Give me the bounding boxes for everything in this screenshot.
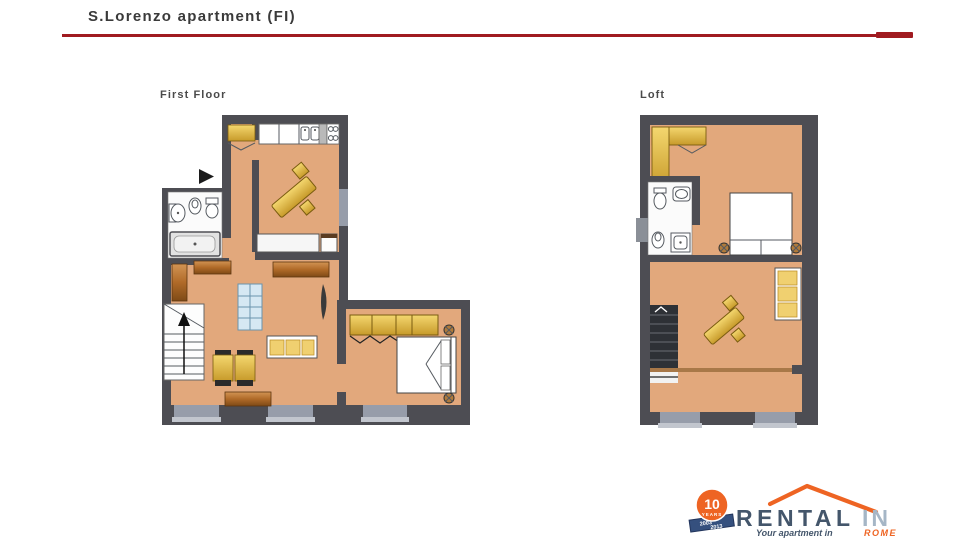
- armchair-left: [213, 350, 233, 386]
- page: S.Lorenzo apartment (FI) First Floor Lof…: [0, 0, 960, 540]
- loft-bedside-lamp-left: [719, 243, 729, 253]
- entry-arrow-icon: [199, 169, 214, 184]
- kitchen-low-counter: [257, 234, 337, 252]
- sofa: [267, 336, 317, 358]
- logo-graphic: RENTAL IN Your apartment in ROME 10 YEAR…: [680, 481, 920, 540]
- armchair-right: [235, 350, 255, 386]
- badge-number: 10: [704, 496, 720, 512]
- sideboard-under-kitchen: [273, 262, 329, 277]
- loft-double-bed: [730, 193, 792, 255]
- staircase: [164, 304, 204, 380]
- loft-sink: [673, 187, 690, 201]
- badge-label: YEARS: [702, 512, 723, 517]
- stove-burners: [327, 124, 339, 144]
- badge-year-bottom: 2013: [710, 524, 723, 532]
- ten-years-badge: 10 YEARS 2003 2013: [689, 489, 734, 533]
- double-bed: [397, 337, 456, 393]
- bathroom: [168, 192, 222, 258]
- page-title: S.Lorenzo apartment (FI): [88, 8, 296, 25]
- bedside-lamp-top: [444, 325, 454, 335]
- bathroom-bidet: [189, 198, 201, 214]
- loft-shower: [671, 233, 690, 252]
- rentalinrome-logo: RENTAL IN Your apartment in ROME 10 YEAR…: [680, 481, 920, 540]
- bathroom-toilet: [206, 198, 218, 218]
- title-divider: [62, 34, 913, 37]
- loft-sofa: [775, 268, 801, 320]
- loft-bathroom: [648, 176, 700, 262]
- logo-tagline-city: ROME: [864, 528, 897, 538]
- logo-tagline: Your apartment in: [756, 528, 833, 538]
- first-floor-plan: [158, 112, 476, 432]
- loft-plan: [636, 112, 822, 432]
- sideboard-bottom: [225, 392, 271, 406]
- sideboard-left-horizontal: [194, 261, 231, 274]
- loft-toilet: [654, 188, 666, 209]
- sideboard-left-vertical: [172, 264, 187, 301]
- title-divider-end: [876, 32, 913, 38]
- loft-label: Loft: [640, 89, 665, 101]
- bathroom-sink: [169, 204, 185, 222]
- glass-shelf: [238, 284, 262, 330]
- bathtub: [170, 232, 220, 256]
- loft-divider-wall: [700, 255, 802, 262]
- loft-entry-door: [636, 218, 649, 242]
- bedside-lamp-bottom: [444, 393, 454, 403]
- kitchen-counter: [259, 124, 339, 144]
- loft-bidet: [652, 232, 664, 248]
- loft-bedside-lamp-right: [791, 243, 801, 253]
- first-floor-label: First Floor: [160, 89, 227, 101]
